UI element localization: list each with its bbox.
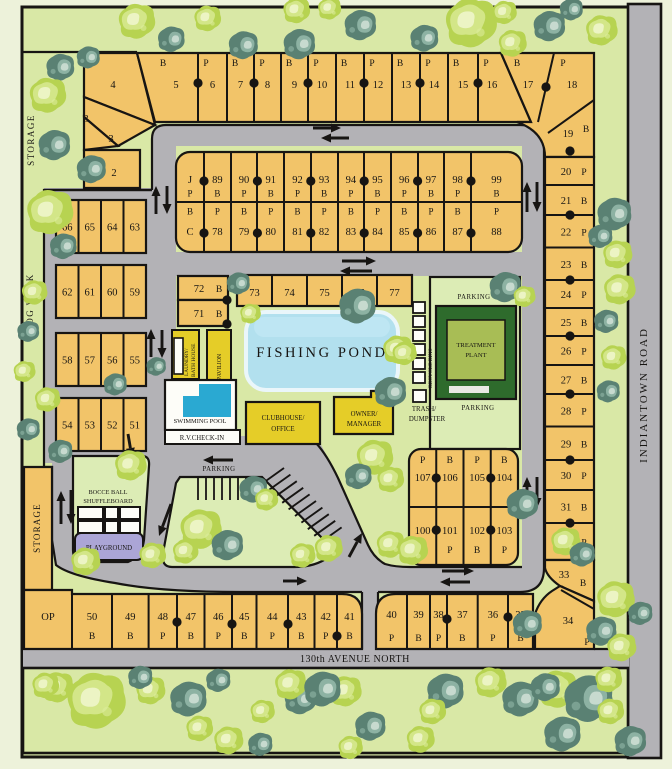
- svg-text:105: 105: [469, 473, 485, 484]
- svg-text:P: P: [483, 59, 488, 69]
- svg-text:P: P: [402, 189, 407, 199]
- svg-text:P: P: [160, 632, 165, 642]
- svg-text:73: 73: [249, 288, 260, 299]
- svg-text:130th AVENUE NORTH: 130th AVENUE NORTH: [300, 654, 410, 665]
- svg-text:PARKING: PARKING: [457, 294, 490, 301]
- svg-text:BOCCE BALL: BOCCE BALL: [88, 489, 127, 496]
- svg-text:B: B: [581, 261, 587, 271]
- svg-text:10: 10: [317, 80, 328, 91]
- svg-text:B: B: [341, 59, 347, 69]
- svg-text:18: 18: [567, 80, 578, 91]
- svg-text:33: 33: [559, 570, 570, 581]
- svg-text:104: 104: [496, 473, 513, 484]
- svg-text:MANAGER: MANAGER: [347, 421, 382, 428]
- svg-text:41: 41: [344, 612, 355, 623]
- svg-text:51: 51: [129, 421, 140, 432]
- svg-text:P: P: [560, 59, 565, 69]
- svg-text:LAUNDRY/: LAUNDRY/: [184, 348, 190, 376]
- svg-text:STORAGE: STORAGE: [26, 114, 36, 166]
- svg-text:83: 83: [346, 227, 357, 238]
- svg-text:PLANT: PLANT: [465, 352, 486, 359]
- svg-text:30: 30: [561, 471, 572, 482]
- svg-text:B: B: [581, 319, 587, 329]
- svg-text:P: P: [187, 189, 192, 199]
- svg-text:47: 47: [186, 612, 197, 623]
- svg-text:B: B: [268, 189, 274, 199]
- svg-text:49: 49: [125, 612, 136, 623]
- svg-text:43: 43: [296, 612, 307, 623]
- svg-text:59: 59: [129, 288, 140, 299]
- svg-text:20: 20: [561, 167, 572, 178]
- svg-text:17: 17: [523, 80, 534, 91]
- svg-text:INDIANTOWN ROAD: INDIANTOWN ROAD: [638, 327, 650, 463]
- svg-text:62: 62: [62, 288, 73, 299]
- svg-text:85: 85: [399, 227, 410, 238]
- svg-text:B: B: [375, 189, 381, 199]
- svg-text:B: B: [453, 59, 459, 69]
- svg-text:54: 54: [62, 421, 73, 432]
- svg-text:24: 24: [561, 290, 572, 301]
- svg-text:B: B: [474, 546, 480, 556]
- svg-text:B: B: [187, 207, 193, 217]
- svg-text:P: P: [216, 632, 221, 642]
- svg-text:27: 27: [561, 376, 572, 387]
- svg-text:58: 58: [62, 356, 73, 367]
- svg-text:FISHING POND: FISHING POND: [256, 345, 388, 361]
- svg-text:P: P: [581, 291, 586, 301]
- svg-text:B: B: [346, 632, 352, 642]
- svg-text:46: 46: [213, 612, 224, 623]
- svg-text:PAVILION: PAVILION: [217, 353, 223, 380]
- svg-text:75: 75: [319, 288, 330, 299]
- svg-text:74: 74: [284, 288, 295, 299]
- svg-text:B: B: [455, 207, 461, 217]
- svg-text:B: B: [232, 59, 238, 69]
- svg-text:J: J: [188, 175, 192, 186]
- svg-text:B: B: [241, 207, 247, 217]
- svg-text:106: 106: [442, 473, 458, 484]
- svg-text:P: P: [581, 348, 586, 358]
- svg-text:63: 63: [129, 223, 140, 234]
- svg-text:103: 103: [496, 526, 512, 537]
- svg-text:36: 36: [488, 610, 499, 621]
- svg-text:78: 78: [212, 227, 223, 238]
- svg-text:P: P: [322, 207, 327, 217]
- svg-text:P: P: [455, 189, 460, 199]
- svg-text:82: 82: [319, 227, 330, 238]
- svg-text:P: P: [447, 546, 452, 556]
- svg-text:23: 23: [561, 260, 572, 271]
- svg-text:B: B: [581, 440, 587, 450]
- svg-text:P: P: [581, 168, 586, 178]
- svg-text:97: 97: [426, 175, 437, 186]
- svg-text:P: P: [369, 59, 374, 69]
- svg-text:25: 25: [561, 318, 572, 329]
- svg-text:28: 28: [561, 406, 572, 417]
- svg-text:60: 60: [107, 288, 118, 299]
- svg-text:91: 91: [266, 175, 277, 186]
- svg-text:P: P: [474, 456, 479, 466]
- svg-text:79: 79: [239, 227, 250, 238]
- svg-text:65: 65: [84, 223, 95, 234]
- svg-text:29: 29: [561, 439, 572, 450]
- svg-text:STORAGE: STORAGE: [32, 503, 42, 553]
- svg-text:90: 90: [239, 175, 250, 186]
- svg-text:44: 44: [267, 612, 278, 623]
- svg-text:71: 71: [194, 309, 205, 320]
- svg-text:P: P: [270, 632, 275, 642]
- svg-text:99: 99: [491, 175, 502, 186]
- svg-text:DUMPSTER: DUMPSTER: [409, 416, 446, 423]
- svg-text:B: B: [286, 59, 292, 69]
- svg-text:55: 55: [129, 356, 140, 367]
- svg-text:P: P: [436, 634, 441, 644]
- svg-text:P: P: [375, 207, 380, 217]
- svg-text:B: B: [298, 632, 304, 642]
- svg-text:50: 50: [87, 612, 98, 623]
- svg-text:B: B: [401, 207, 407, 217]
- svg-text:93: 93: [319, 175, 330, 186]
- svg-text:P: P: [323, 632, 328, 642]
- svg-text:P: P: [268, 207, 273, 217]
- svg-text:OP: OP: [41, 612, 55, 623]
- svg-text:38: 38: [433, 610, 444, 621]
- svg-text:P: P: [425, 59, 430, 69]
- svg-text:84: 84: [372, 227, 383, 238]
- svg-text:8: 8: [265, 80, 270, 91]
- svg-text:14: 14: [429, 80, 440, 91]
- svg-text:42: 42: [321, 612, 332, 623]
- svg-text:89: 89: [212, 175, 223, 186]
- svg-text:B: B: [160, 59, 166, 69]
- svg-text:98: 98: [452, 175, 463, 186]
- svg-text:12: 12: [373, 80, 384, 91]
- svg-text:13: 13: [401, 80, 412, 91]
- svg-text:B: B: [216, 310, 222, 320]
- svg-text:B: B: [348, 207, 354, 217]
- svg-text:72: 72: [194, 284, 205, 295]
- svg-text:64: 64: [107, 223, 118, 234]
- svg-text:100: 100: [415, 526, 431, 537]
- svg-text:P: P: [502, 546, 507, 556]
- svg-text:B: B: [501, 456, 507, 466]
- svg-text:P: P: [581, 472, 586, 482]
- svg-text:11: 11: [345, 80, 355, 91]
- svg-text:107: 107: [415, 473, 431, 484]
- svg-text:21: 21: [561, 196, 572, 207]
- svg-text:B: B: [459, 634, 465, 644]
- svg-text:3: 3: [83, 114, 88, 125]
- svg-text:45: 45: [239, 612, 250, 623]
- svg-text:48: 48: [158, 612, 169, 623]
- svg-text:86: 86: [426, 227, 437, 238]
- svg-text:B: B: [397, 59, 403, 69]
- svg-text:4: 4: [110, 80, 116, 91]
- svg-text:87: 87: [452, 227, 463, 238]
- svg-text:B: B: [580, 579, 586, 589]
- svg-text:P: P: [420, 456, 425, 466]
- svg-text:P: P: [581, 228, 586, 238]
- svg-text:RECYCLE BINS: RECYCLE BINS: [428, 348, 434, 388]
- svg-text:B: B: [583, 125, 589, 135]
- svg-text:15: 15: [458, 80, 469, 91]
- svg-text:B: B: [581, 197, 587, 207]
- svg-text:B: B: [428, 189, 434, 199]
- svg-text:B: B: [321, 189, 327, 199]
- svg-text:P: P: [295, 189, 300, 199]
- svg-text:P: P: [313, 59, 318, 69]
- svg-text:P: P: [203, 59, 208, 69]
- svg-text:5: 5: [173, 80, 178, 91]
- svg-text:77: 77: [389, 288, 400, 299]
- svg-text:B: B: [447, 456, 453, 466]
- svg-text:9: 9: [292, 80, 297, 91]
- svg-text:R.V.CHECK-IN: R.V.CHECK-IN: [180, 435, 225, 442]
- svg-text:BATH HOUSE: BATH HOUSE: [191, 343, 197, 377]
- svg-text:B: B: [216, 285, 222, 295]
- svg-text:TREATMENT: TREATMENT: [456, 342, 495, 349]
- svg-text:B: B: [514, 59, 520, 69]
- svg-text:B: B: [127, 632, 133, 642]
- svg-text:B: B: [581, 377, 587, 387]
- svg-text:39: 39: [413, 610, 424, 621]
- svg-text:26: 26: [561, 347, 572, 358]
- svg-text:P: P: [348, 189, 353, 199]
- svg-text:P: P: [490, 634, 495, 644]
- svg-text:94: 94: [346, 175, 357, 186]
- svg-text:40: 40: [386, 610, 397, 621]
- svg-text:31: 31: [561, 503, 572, 514]
- svg-text:92: 92: [292, 175, 303, 186]
- svg-text:B: B: [188, 632, 194, 642]
- svg-text:B: B: [241, 632, 247, 642]
- svg-text:PARKING: PARKING: [461, 405, 494, 412]
- svg-text:TRASH/: TRASH/: [412, 406, 436, 413]
- svg-text:P: P: [259, 59, 264, 69]
- svg-text:P: P: [494, 207, 499, 217]
- svg-text:P: P: [389, 634, 394, 644]
- svg-text:OWNER/: OWNER/: [351, 411, 378, 418]
- svg-text:SHUFFLEBOARD: SHUFFLEBOARD: [83, 498, 133, 505]
- svg-text:19: 19: [563, 129, 574, 140]
- svg-text:61: 61: [84, 288, 95, 299]
- svg-text:B: B: [581, 504, 587, 514]
- svg-text:81: 81: [292, 227, 303, 238]
- svg-text:22: 22: [561, 227, 572, 238]
- svg-text:3: 3: [108, 134, 113, 145]
- svg-text:B: B: [214, 189, 220, 199]
- svg-text:7: 7: [238, 80, 243, 91]
- svg-text:57: 57: [84, 356, 95, 367]
- svg-text:101: 101: [442, 526, 458, 537]
- svg-text:80: 80: [266, 227, 277, 238]
- svg-text:52: 52: [107, 421, 118, 432]
- svg-text:P: P: [581, 407, 586, 417]
- svg-text:56: 56: [107, 356, 118, 367]
- svg-text:96: 96: [399, 175, 410, 186]
- svg-text:B: B: [294, 207, 300, 217]
- svg-text:C: C: [186, 227, 193, 238]
- svg-text:34: 34: [563, 616, 574, 627]
- svg-text:B: B: [415, 634, 421, 644]
- svg-text:53: 53: [84, 421, 95, 432]
- svg-text:B: B: [89, 632, 95, 642]
- svg-text:SWIMMING POOL: SWIMMING POOL: [174, 418, 227, 425]
- svg-text:37: 37: [457, 610, 468, 621]
- svg-text:102: 102: [469, 526, 485, 537]
- svg-text:P: P: [215, 207, 220, 217]
- svg-text:OFFICE: OFFICE: [271, 426, 294, 433]
- svg-text:16: 16: [487, 80, 498, 91]
- svg-text:P: P: [428, 207, 433, 217]
- svg-text:88: 88: [491, 227, 502, 238]
- svg-text:2: 2: [111, 168, 116, 179]
- svg-text:6: 6: [210, 80, 215, 91]
- svg-text:PARKING: PARKING: [202, 466, 235, 473]
- svg-text:95: 95: [372, 175, 383, 186]
- svg-text:P: P: [242, 189, 247, 199]
- svg-text:CLUBHOUSE/: CLUBHOUSE/: [262, 415, 305, 422]
- svg-text:B: B: [493, 189, 499, 199]
